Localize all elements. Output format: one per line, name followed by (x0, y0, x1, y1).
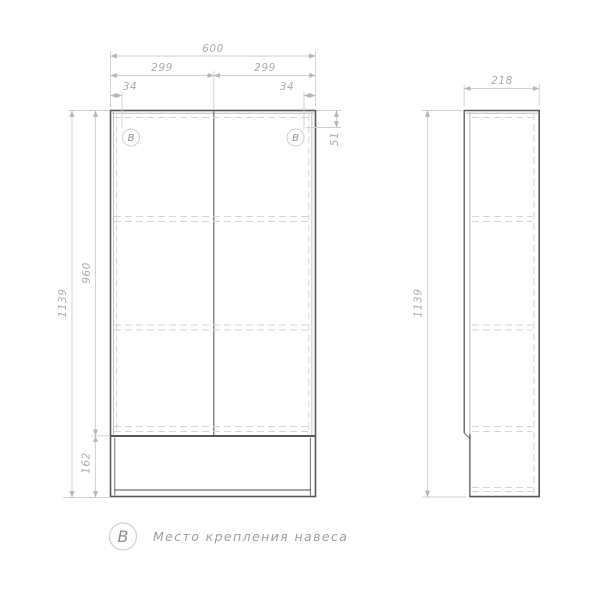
dimension-height-total: 1139 (57, 111, 109, 498)
dimension-door-height: 960 (81, 111, 110, 436)
mount-marker-left-label: В (128, 133, 135, 144)
dimension-base-height: 162 (81, 436, 96, 498)
side-dimensions: 218 1139 (413, 75, 540, 497)
front-carcass-outline (111, 111, 316, 497)
dimension-width-total: 600 (111, 43, 316, 107)
cabinet-technical-drawing: 600 299 299 34 34 51 (0, 0, 600, 600)
dim-label-side-height: 1139 (413, 288, 425, 317)
dim-label-door-width-right: 299 (254, 62, 276, 74)
dimension-side-height: 1139 (413, 111, 467, 498)
dim-label-mount-depth: 51 (329, 132, 341, 147)
dim-label-depth: 218 (491, 75, 513, 87)
legend: В Место крепления навеса (110, 523, 349, 550)
dimension-depth: 218 (464, 75, 539, 106)
side-hidden-edges (472, 113, 534, 494)
mount-marker-right-label: В (292, 133, 299, 144)
side-view (464, 110, 540, 497)
dim-label-mount-offset-right: 34 (280, 81, 295, 93)
front-view (111, 111, 316, 497)
dim-label-door-height: 960 (81, 262, 93, 284)
dim-label-width-total: 600 (202, 43, 224, 55)
legend-label: Место крепления навеса (153, 529, 348, 544)
dimension-mount-depth: 51 (306, 111, 341, 147)
legend-symbol-label: В (118, 527, 129, 546)
dim-label-mount-offset-left: 34 (123, 81, 138, 93)
front-hidden-edges (114, 115, 312, 435)
dim-label-height-total: 1139 (57, 288, 69, 317)
dim-label-door-width-left: 299 (151, 62, 173, 74)
mount-marker-right: В (287, 129, 304, 146)
dimension-mount-offsets: 34 34 (111, 81, 316, 129)
side-door-bottom-chamfer (464, 433, 470, 439)
dim-label-base-height: 162 (81, 452, 93, 474)
mount-marker-left: В (123, 129, 140, 146)
